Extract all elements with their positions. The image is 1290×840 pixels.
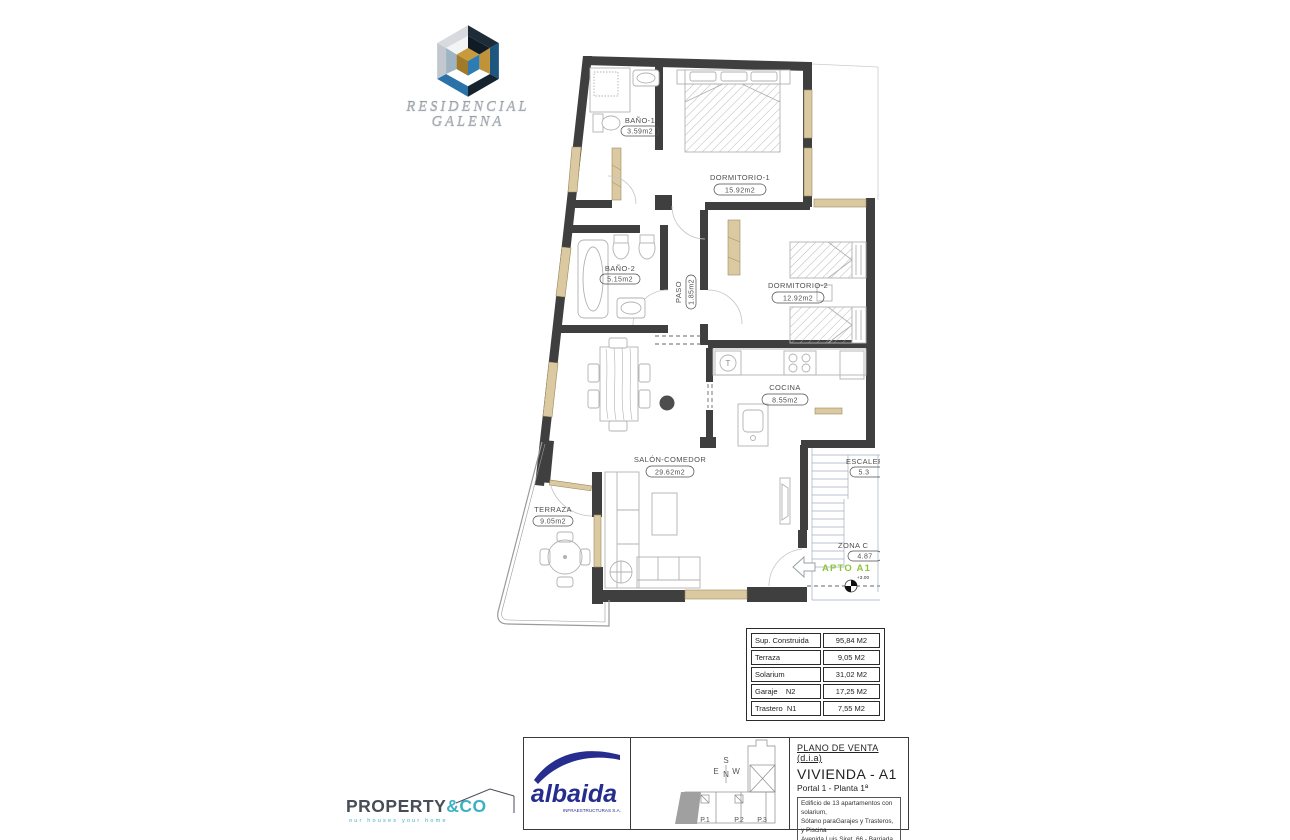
room-label-terraza: TERRAZA: [534, 505, 572, 514]
table-row: Trastero N1 7,55 M2: [751, 701, 880, 716]
portal-2-label: P.2: [734, 817, 744, 824]
title-block: albaida INFRAESTRUCTURAS S.A. S E N W: [523, 737, 909, 830]
area-label: Solarium: [751, 667, 821, 682]
room-label-bano1: BAÑO-1: [625, 116, 655, 125]
room-label-escalera: ESCALERA: [846, 457, 880, 466]
key-plan-highlight: [675, 792, 701, 824]
property-tagline: our houses your home: [346, 818, 526, 824]
room-label-zona-comun: ZONA C: [838, 541, 869, 550]
room-label-cocina: COCINA: [769, 383, 801, 392]
compass-e: E: [713, 767, 718, 776]
balcony-outline: [812, 64, 878, 200]
room-area-paso: 1.85m2: [689, 279, 696, 305]
level-marker-text: +3.00: [857, 575, 869, 581]
entry-annotation: APTO A1 +3.00: [793, 557, 871, 592]
svg-text:T: T: [726, 359, 731, 368]
area-label: Trastero N1: [751, 701, 821, 716]
area-label: Sup. Construida: [751, 633, 821, 648]
key-plan: S E N W: [631, 738, 790, 829]
albaida-name: albaida: [531, 780, 617, 808]
albaida-logo: albaida INFRAESTRUCTURAS S.A.: [524, 738, 631, 829]
description-line: Avenida Luis Siret, 66 - Barriada HERRER…: [801, 836, 897, 840]
page: RESIDENCIAL GALENA: [0, 0, 1290, 840]
area-value: 7,55 M2: [823, 701, 880, 716]
table-row: Sup. Construida 95,84 M2: [751, 633, 880, 648]
portal-floor: Portal 1 - Planta 1ª: [797, 783, 901, 793]
property-text: PROPERTY: [346, 796, 446, 816]
areas-table: Sup. Construida 95,84 M2 Terraza 9,05 M2…: [746, 628, 885, 721]
area-value: 17,25 M2: [823, 684, 880, 699]
table-row: Terraza 9,05 M2: [751, 650, 880, 665]
apartment-label: APTO A1: [822, 563, 871, 574]
room-area-bano2: 5.15m2: [607, 277, 633, 284]
area-value: 9,05 M2: [823, 650, 880, 665]
area-value: 31,02 M2: [823, 667, 880, 682]
area-value: 95,84 M2: [823, 633, 880, 648]
plan-type: PLANO DE VENTA (d.i.a): [797, 743, 901, 763]
portal-1-label: P.1: [700, 817, 710, 824]
title-block-info: PLANO DE VENTA (d.i.a) VIVIENDA - A1 Por…: [790, 738, 908, 829]
area-label: Garaje N2: [751, 684, 821, 699]
stairs: [812, 448, 880, 600]
floor-plan-drawing: T: [488, 52, 880, 630]
room-area-dorm1: 15.92m2: [725, 188, 755, 195]
room-label-salon: SALÓN-COMEDOR: [634, 455, 706, 464]
property-co-logo: PROPERTY&CO our houses your home: [346, 796, 526, 824]
table-row: Solarium 31,02 M2: [751, 667, 880, 682]
description-line: Edificio de 13 apartamentos con solarium…: [801, 800, 897, 818]
room-area-terraza: 9.05m2: [540, 519, 566, 526]
description-line: Sótano paraGarajes y Trasteros, y Piscin…: [801, 818, 897, 836]
compass-s: S: [723, 756, 728, 765]
room-label-dorm1: DORMITORIO-1: [710, 173, 770, 182]
portal-3-label: P.3: [757, 817, 767, 824]
house-outline-icon: [454, 787, 516, 815]
dwelling-title: VIVIENDA - A1: [797, 766, 901, 782]
room-area-salon: 29.62m2: [655, 470, 685, 477]
table-row: Garaje N2 17,25 M2: [751, 684, 880, 699]
floor-plan: T: [488, 52, 880, 630]
building-description: Edificio de 13 apartamentos con solarium…: [797, 797, 901, 840]
compass-w: W: [732, 767, 740, 776]
area-label: Terraza: [751, 650, 821, 665]
room-label-bano2: BAÑO-2: [605, 264, 635, 273]
room-area-zona-comun: 4.87: [857, 554, 872, 561]
room-area-dorm2: 12.92m2: [783, 296, 813, 303]
room-area-bano1: 3.59m2: [627, 129, 653, 136]
room-label-dorm2: DORMITORIO-2: [768, 281, 828, 290]
albaida-subtitle: INFRAESTRUCTURAS S.A.: [563, 808, 621, 813]
room-area-escalera: 5.3: [859, 470, 870, 477]
room-area-cocina: 8.55m2: [772, 398, 798, 405]
room-label-paso: PASO: [674, 281, 683, 303]
